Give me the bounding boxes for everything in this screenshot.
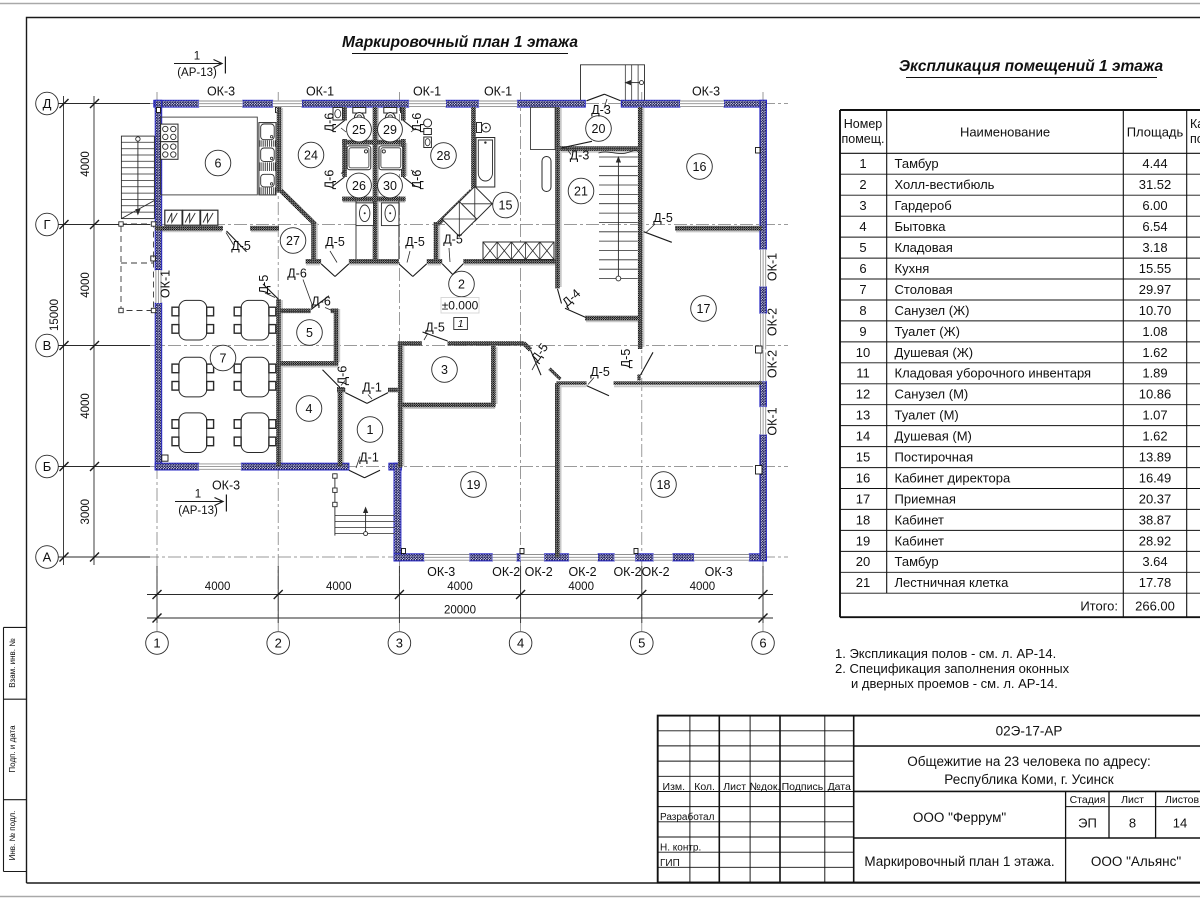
svg-text:Д-5: Д-5 [590,365,610,379]
svg-text:Маркировочный план 1 этажа.: Маркировочный план 1 этажа. [864,854,1054,869]
svg-text:10.70: 10.70 [1139,303,1172,318]
svg-text:Б: Б [43,459,52,474]
svg-text:Бытовка: Бытовка [895,219,947,234]
svg-text:Гардероб: Гардероб [895,198,952,213]
svg-text:29: 29 [383,123,397,137]
svg-text:29.97: 29.97 [1139,282,1172,297]
svg-text:4000: 4000 [205,581,231,593]
svg-text:18: 18 [657,478,671,492]
svg-text:Душевая (Ж): Душевая (Ж) [895,345,974,360]
svg-text:ООО "Феррум": ООО "Феррум" [913,810,1007,825]
svg-text:Кухня: Кухня [895,261,930,276]
svg-text:19: 19 [467,478,481,492]
svg-text:1: 1 [458,318,464,330]
svg-text:помещ.: помещ. [841,132,884,146]
svg-text:Общежитие на 23 человека по ад: Общежитие на 23 человека по адресу: [907,754,1150,769]
svg-text:20.37: 20.37 [1139,491,1172,506]
svg-text:ОК-3: ОК-3 [212,479,240,493]
svg-text:Кабинет: Кабинет [895,533,944,548]
svg-text:Н. контр.: Н. контр. [660,843,701,854]
svg-text:Д-5: Д-5 [325,235,345,249]
svg-text:Д-5: Д-5 [257,275,271,295]
svg-text:ОК-2: ОК-2 [525,565,553,579]
svg-text:17: 17 [697,302,711,316]
svg-text:Д-5: Д-5 [231,239,251,253]
svg-text:Маркировочный план 1 этажа: Маркировочный план 1 этажа [342,34,578,51]
svg-text:Д-5: Д-5 [405,235,425,249]
svg-text:15.55: 15.55 [1139,261,1172,276]
svg-text:Д-1: Д-1 [359,451,379,465]
svg-text:3: 3 [396,636,403,651]
svg-text:7: 7 [859,282,866,297]
svg-text:Столовая: Столовая [895,282,953,297]
svg-text:1.62: 1.62 [1142,429,1167,444]
svg-text:Лист: Лист [1121,794,1144,806]
svg-text:4000: 4000 [80,151,92,177]
svg-text:Итого:: Итого: [1080,599,1118,614]
svg-text:и дверных проемов - см. л. АР-: и дверных проемов - см. л. АР-14. [851,676,1058,691]
svg-text:Душевая (М): Душевая (М) [895,429,972,444]
svg-text:24: 24 [304,149,318,163]
svg-text:Д-6: Д-6 [336,366,350,386]
svg-text:14: 14 [1173,816,1187,831]
svg-text:10.86: 10.86 [1139,387,1172,402]
svg-text:№док.: №док. [750,781,781,793]
svg-text:1: 1 [195,489,201,501]
svg-text:5: 5 [306,326,313,340]
svg-text:27: 27 [286,234,300,248]
svg-text:Тамбур: Тамбур [895,554,939,569]
svg-text:11: 11 [856,366,870,381]
svg-text:4: 4 [517,636,524,651]
svg-text:20: 20 [592,122,606,136]
svg-text:13.89: 13.89 [1139,450,1172,465]
svg-text:5: 5 [638,636,645,651]
svg-text:16: 16 [856,470,870,485]
svg-text:19: 19 [856,533,870,548]
svg-text:28.92: 28.92 [1139,533,1172,548]
svg-text:Кабинет директора: Кабинет директора [895,470,1011,485]
svg-text:4000: 4000 [326,581,352,593]
svg-text:Г: Г [43,217,50,232]
svg-text:ОК-1: ОК-1 [766,253,780,281]
svg-text:Д: Д [43,96,52,111]
svg-text:7: 7 [220,352,227,366]
svg-text:Подп. и дата: Подп. и дата [8,725,17,773]
svg-text:Туалет (Ж): Туалет (Ж) [895,324,960,339]
svg-text:Д-6: Д-6 [287,267,307,281]
svg-text:10: 10 [856,345,870,360]
svg-text:А: А [43,550,52,565]
svg-text:Д-6: Д-6 [410,170,424,190]
svg-text:Взам. инв. №: Взам. инв. № [8,638,17,688]
svg-text:2: 2 [458,278,465,292]
svg-text:ЭП: ЭП [1078,816,1097,831]
svg-text:28: 28 [437,149,451,163]
svg-text:Д-3: Д-3 [591,103,611,117]
svg-text:1: 1 [153,636,160,651]
svg-text:31.52: 31.52 [1139,177,1172,192]
svg-text:15000: 15000 [49,299,61,331]
svg-text:1.08: 1.08 [1142,324,1167,339]
svg-text:ОК-3: ОК-3 [692,85,720,99]
svg-text:Изм.: Изм. [663,781,686,793]
svg-text:Лист: Лист [723,781,746,793]
svg-text:ОК-3: ОК-3 [705,565,733,579]
svg-text:по: по [1190,132,1200,146]
svg-text:Приемная: Приемная [895,491,956,506]
svg-text:4: 4 [306,402,313,416]
svg-text:17.78: 17.78 [1139,575,1172,590]
svg-text:26: 26 [352,179,366,193]
svg-text:4000: 4000 [568,581,594,593]
svg-text:6: 6 [859,261,866,276]
svg-text:2. Спецификация заполнения око: 2. Спецификация заполнения оконных [835,661,1070,676]
svg-text:Наименование: Наименование [960,125,1050,140]
svg-text:14: 14 [856,429,870,444]
svg-text:8: 8 [859,303,866,318]
svg-text:Д-5: Д-5 [425,321,445,335]
svg-text:1. Экспликация полов - см. л.: 1. Экспликация полов - см. л. АР-14. [835,646,1056,661]
svg-text:4: 4 [859,219,866,234]
svg-text:1: 1 [859,156,866,171]
svg-text:3000: 3000 [80,499,92,525]
svg-text:Площадь: Площадь [1127,125,1184,140]
svg-text:3.64: 3.64 [1142,554,1167,569]
svg-text:Санузел (Ж): Санузел (Ж) [895,303,970,318]
svg-text:6: 6 [215,157,222,171]
svg-text:25: 25 [352,123,366,137]
svg-text:ОК-1: ОК-1 [306,85,334,99]
svg-text:Кладовая: Кладовая [895,240,953,255]
svg-text:Д-5: Д-5 [619,349,633,369]
svg-text:15: 15 [499,199,513,213]
svg-text:17: 17 [856,491,870,506]
svg-text:ОК-1: ОК-1 [413,85,441,99]
svg-text:13: 13 [856,408,870,423]
svg-text:8: 8 [1129,816,1136,831]
svg-text:±0.000: ±0.000 [442,299,479,313]
svg-text:Подпись: Подпись [782,781,824,793]
svg-text:20: 20 [856,554,870,569]
svg-text:Ка: Ка [1190,117,1200,131]
svg-text:ОК-2: ОК-2 [641,565,669,579]
svg-text:ОК-2: ОК-2 [766,308,780,336]
svg-text:5: 5 [859,240,866,255]
svg-text:1: 1 [194,51,200,63]
svg-text:21: 21 [574,185,588,199]
svg-text:ОК-1: ОК-1 [484,85,512,99]
svg-text:1.07: 1.07 [1142,408,1167,423]
svg-text:30: 30 [383,179,397,193]
svg-text:Кол.: Кол. [694,781,715,793]
svg-text:4000: 4000 [447,581,473,593]
svg-text:3.18: 3.18 [1142,240,1167,255]
svg-text:Экспликация помещений 1 этажа: Экспликация помещений 1 этажа [899,58,1164,75]
svg-text:3: 3 [441,363,448,377]
svg-text:6.54: 6.54 [1142,219,1167,234]
svg-text:Д-5: Д-5 [443,233,463,247]
svg-text:Номер: Номер [844,117,883,131]
svg-text:Кабинет: Кабинет [895,512,944,527]
svg-text:Листов: Листов [1165,794,1200,806]
svg-text:Постирочная: Постирочная [895,450,974,465]
svg-text:Д-6: Д-6 [311,295,331,309]
svg-text:20000: 20000 [444,605,476,617]
svg-text:Д-6: Д-6 [323,113,337,133]
svg-text:Инв. № подл.: Инв. № подл. [8,811,17,861]
svg-text:ОК-2: ОК-2 [568,565,596,579]
svg-text:ОК-3: ОК-3 [427,565,455,579]
svg-text:18: 18 [856,512,870,527]
svg-text:15: 15 [856,450,870,465]
svg-text:9: 9 [859,324,866,339]
svg-text:3: 3 [859,198,866,213]
svg-text:16.49: 16.49 [1139,470,1172,485]
svg-text:02Э-17-АР: 02Э-17-АР [996,724,1063,739]
svg-text:ОК-2: ОК-2 [613,565,641,579]
svg-text:16: 16 [693,160,707,174]
svg-text:Стадия: Стадия [1070,794,1106,806]
svg-text:2: 2 [859,177,866,192]
svg-text:2: 2 [275,636,282,651]
svg-text:1: 1 [367,423,374,437]
svg-text:21: 21 [856,575,870,590]
svg-text:266.00: 266.00 [1135,599,1175,614]
svg-text:ОК-1: ОК-1 [159,270,173,298]
svg-text:Дата: Дата [828,781,851,793]
svg-text:1.89: 1.89 [1142,366,1167,381]
svg-text:Лестничная клетка: Лестничная клетка [895,575,1010,590]
svg-text:Санузел (М): Санузел (М) [895,387,969,402]
svg-text:4000: 4000 [80,393,92,419]
svg-text:ОК-2: ОК-2 [766,350,780,378]
svg-text:6: 6 [759,636,766,651]
svg-text:ОК-3: ОК-3 [207,85,235,99]
svg-text:1.62: 1.62 [1142,345,1167,360]
svg-text:38.87: 38.87 [1139,512,1172,527]
svg-text:4000: 4000 [80,272,92,298]
svg-text:ГИП: ГИП [660,858,680,869]
svg-text:Холл-вестибюль: Холл-вестибюль [895,177,995,192]
svg-text:В: В [43,338,52,353]
svg-text:(АР-13): (АР-13) [178,505,218,517]
svg-text:Д-6: Д-6 [410,113,424,133]
svg-text:4.44: 4.44 [1142,156,1167,171]
svg-text:(АР-13): (АР-13) [177,67,217,79]
svg-text:Кладовая уборочного инвентаря: Кладовая уборочного инвентаря [895,366,1092,381]
svg-text:Тамбур: Тамбур [895,156,939,171]
svg-text:Д-3: Д-3 [570,149,590,163]
svg-text:6.00: 6.00 [1142,198,1167,213]
svg-text:Д-5: Д-5 [653,211,673,225]
svg-text:ОК-1: ОК-1 [766,407,780,435]
svg-text:Д-6: Д-6 [323,170,337,190]
svg-text:Разработал: Разработал [660,811,715,823]
svg-text:12: 12 [856,387,870,402]
svg-text:ООО "Альянс": ООО "Альянс" [1091,854,1181,869]
svg-text:4000: 4000 [690,581,716,593]
svg-text:Д-1: Д-1 [362,381,382,395]
svg-text:Туалет (М): Туалет (М) [895,408,959,423]
svg-text:ОК-2: ОК-2 [492,565,520,579]
svg-text:Республика Коми, г. Усинск: Республика Коми, г. Усинск [944,772,1114,787]
